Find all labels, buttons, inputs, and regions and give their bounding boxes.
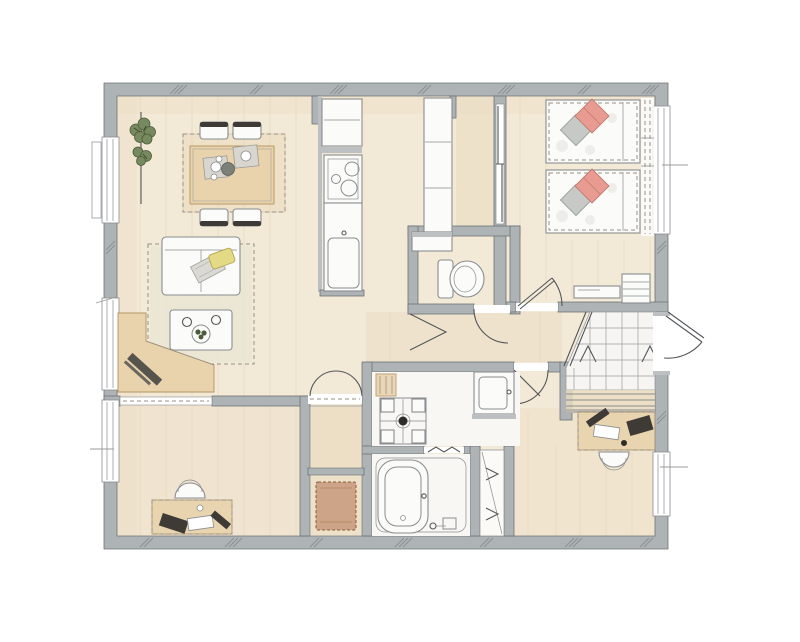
cooktop [324,155,362,203]
washroom [372,372,520,446]
sofa [162,237,240,295]
window-left-living [102,298,119,390]
entrance-steps [566,390,655,413]
bed-1 [546,99,640,163]
hand-wash-shelf [412,232,452,251]
bathroom [372,447,470,536]
coffee-table [170,310,232,350]
kitchen-sink [324,203,362,291]
window-left-study [102,400,119,482]
closet-column [308,371,362,536]
entrance [564,312,704,413]
study-desk [152,500,232,534]
drawer-chest [622,274,650,303]
window-curtain [641,98,654,236]
dining-chair [200,122,228,139]
window-right-bedroom [653,106,670,234]
dining-table [190,146,274,204]
floor-plan [0,0,800,642]
floor-plan-canvas [0,0,800,642]
vanity-basin [472,372,516,419]
study-sliding-door [120,397,212,405]
window-right-workroom [653,452,670,516]
laundry-shelf [376,374,396,396]
toilet-door-gap [474,305,510,313]
dining-chair [233,209,261,226]
louver-closet [480,450,504,536]
refrigerator [322,99,362,146]
washroom-door-gap [514,363,548,371]
dining-chair [200,209,228,226]
bathtub [378,460,428,533]
washing-machine-pan [380,398,426,444]
sliding-door-bedroom [496,104,504,224]
dining-chair [233,122,261,139]
bath-door [424,447,464,453]
closet-mat [316,482,356,530]
counter-divider [322,147,362,153]
place-setting [233,145,259,168]
kitchen [322,99,362,291]
serving-bowl [222,163,235,176]
entry-door [653,312,704,375]
tall-cabinet [424,98,452,232]
tv-bench [574,286,620,298]
bed-2 [546,169,640,233]
toilet [438,260,484,298]
workspace-desk [578,408,655,450]
window-left-dining [92,137,119,223]
